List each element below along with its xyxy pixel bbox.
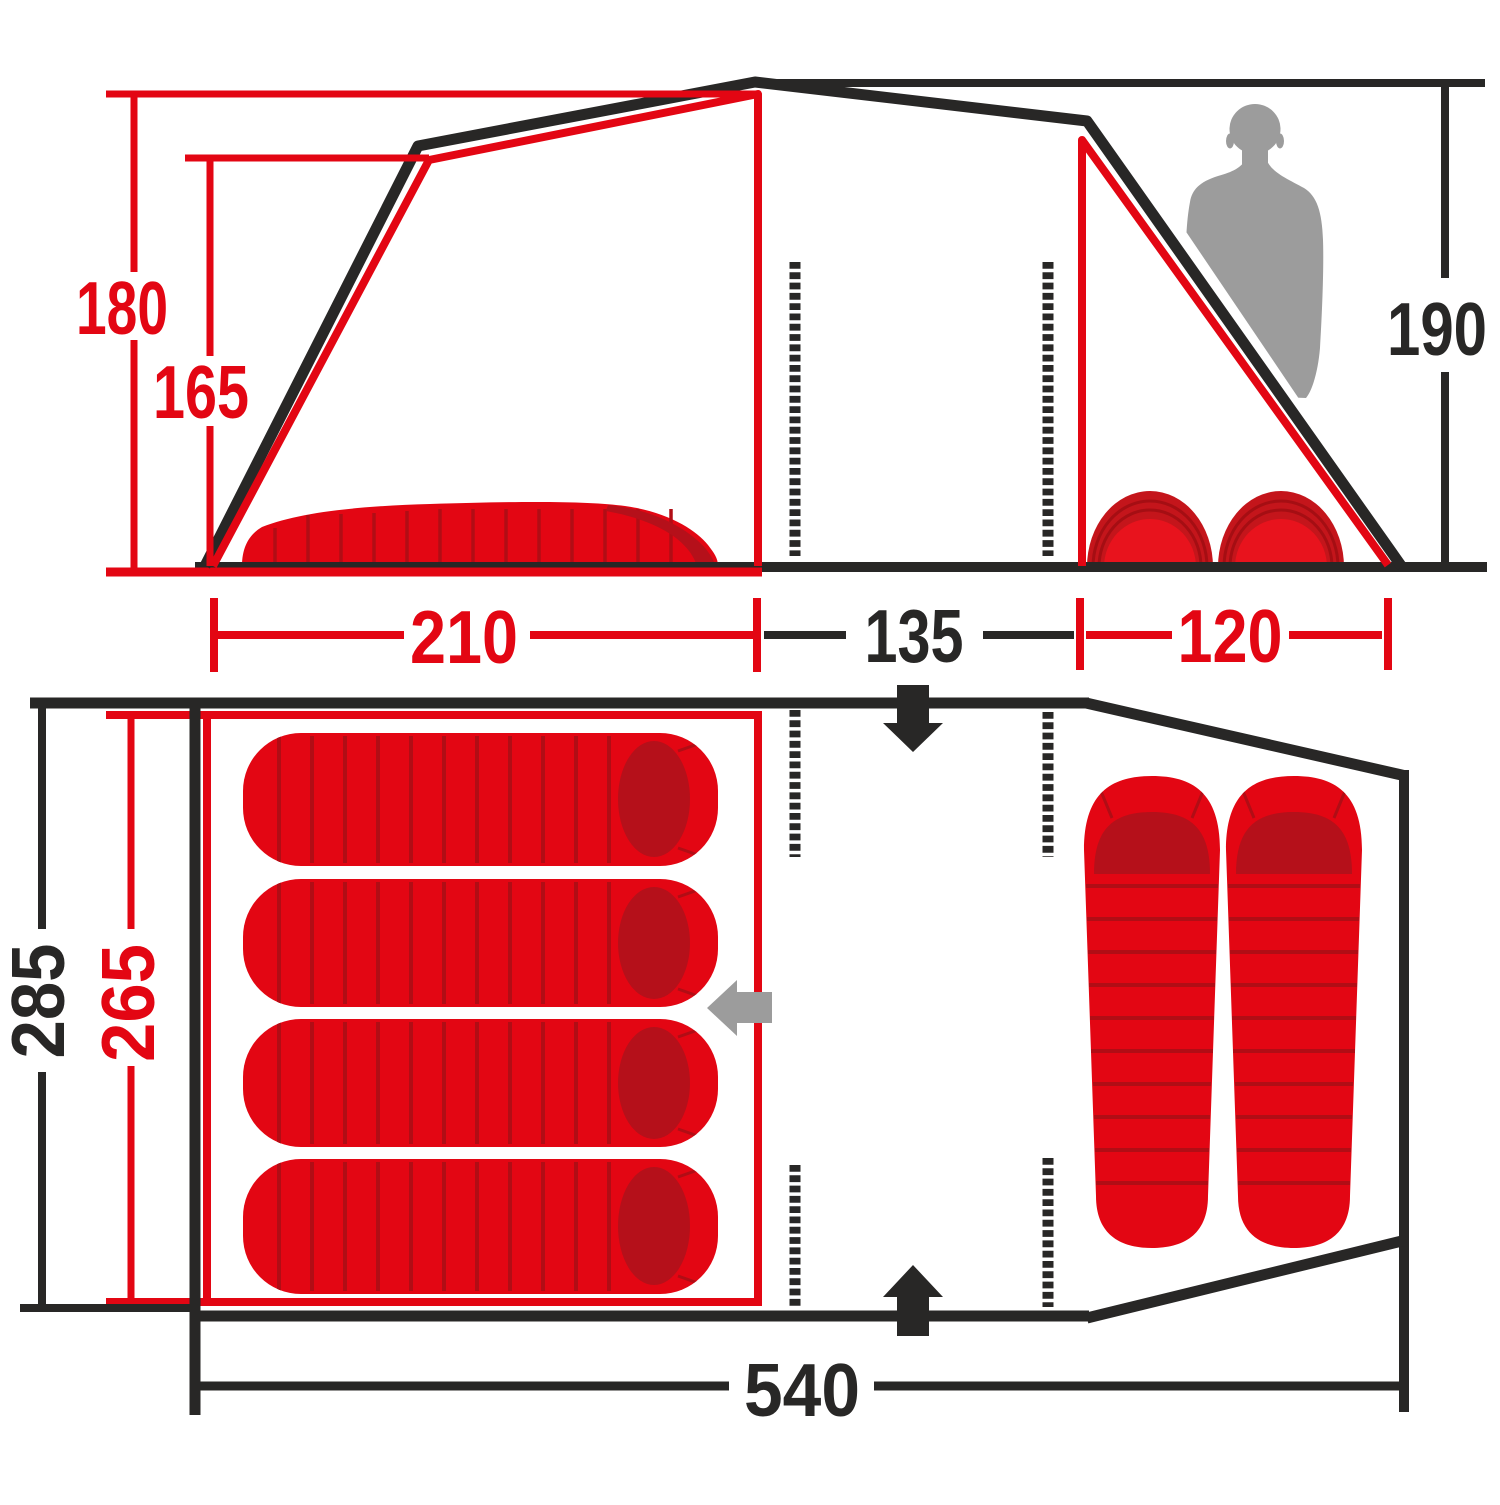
svg-text:180: 180 [76, 266, 168, 350]
svg-text:190: 190 [1387, 287, 1487, 371]
svg-text:165: 165 [153, 350, 249, 434]
svg-text:540: 540 [744, 1348, 860, 1432]
svg-text:210: 210 [410, 595, 518, 679]
svg-text:120: 120 [1178, 594, 1283, 678]
svg-text:135: 135 [865, 594, 964, 678]
svg-text:285: 285 [0, 944, 80, 1059]
svg-text:265: 265 [86, 944, 170, 1062]
